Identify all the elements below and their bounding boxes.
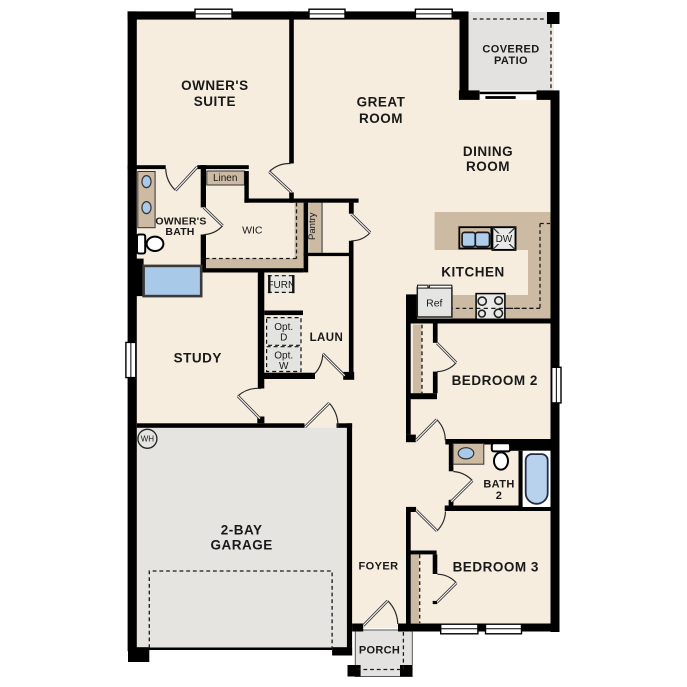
svg-text:Linen: Linen (213, 173, 237, 184)
svg-text:GARAGE: GARAGE (210, 538, 272, 553)
svg-text:LAUN: LAUN (310, 332, 344, 344)
svg-text:DW: DW (496, 234, 513, 245)
svg-text:ROOM: ROOM (466, 159, 510, 174)
svg-text:KITCHEN: KITCHEN (441, 265, 505, 280)
svg-text:BEDROOM 3: BEDROOM 3 (453, 560, 539, 575)
svg-text:D: D (280, 333, 287, 344)
svg-text:WIC: WIC (242, 225, 263, 237)
svg-text:PORCH: PORCH (359, 644, 400, 656)
svg-text:PATIO: PATIO (494, 55, 528, 67)
svg-text:WH: WH (141, 435, 155, 444)
svg-text:COVERED: COVERED (482, 43, 539, 55)
svg-text:BEDROOM 2: BEDROOM 2 (452, 373, 538, 388)
svg-text:2-BAY: 2-BAY (221, 523, 263, 538)
svg-text:BATH: BATH (483, 479, 514, 491)
svg-text:Ref: Ref (426, 298, 442, 310)
svg-text:ROOM: ROOM (359, 111, 403, 126)
svg-text:Pantry: Pantry (307, 212, 318, 240)
svg-text:DINING: DINING (463, 144, 513, 159)
svg-text:GREAT: GREAT (357, 95, 406, 110)
svg-text:FOYER: FOYER (359, 561, 399, 573)
svg-text:2: 2 (496, 490, 503, 502)
svg-text:Opt.: Opt. (274, 322, 293, 333)
svg-text:OWNER'S: OWNER'S (181, 78, 248, 93)
svg-text:BATH: BATH (165, 226, 194, 238)
svg-text:SUITE: SUITE (194, 94, 236, 109)
svg-text:FURN: FURN (267, 280, 295, 291)
svg-text:W: W (279, 361, 289, 372)
svg-text:Opt.: Opt. (274, 351, 293, 362)
svg-text:STUDY: STUDY (174, 350, 222, 365)
